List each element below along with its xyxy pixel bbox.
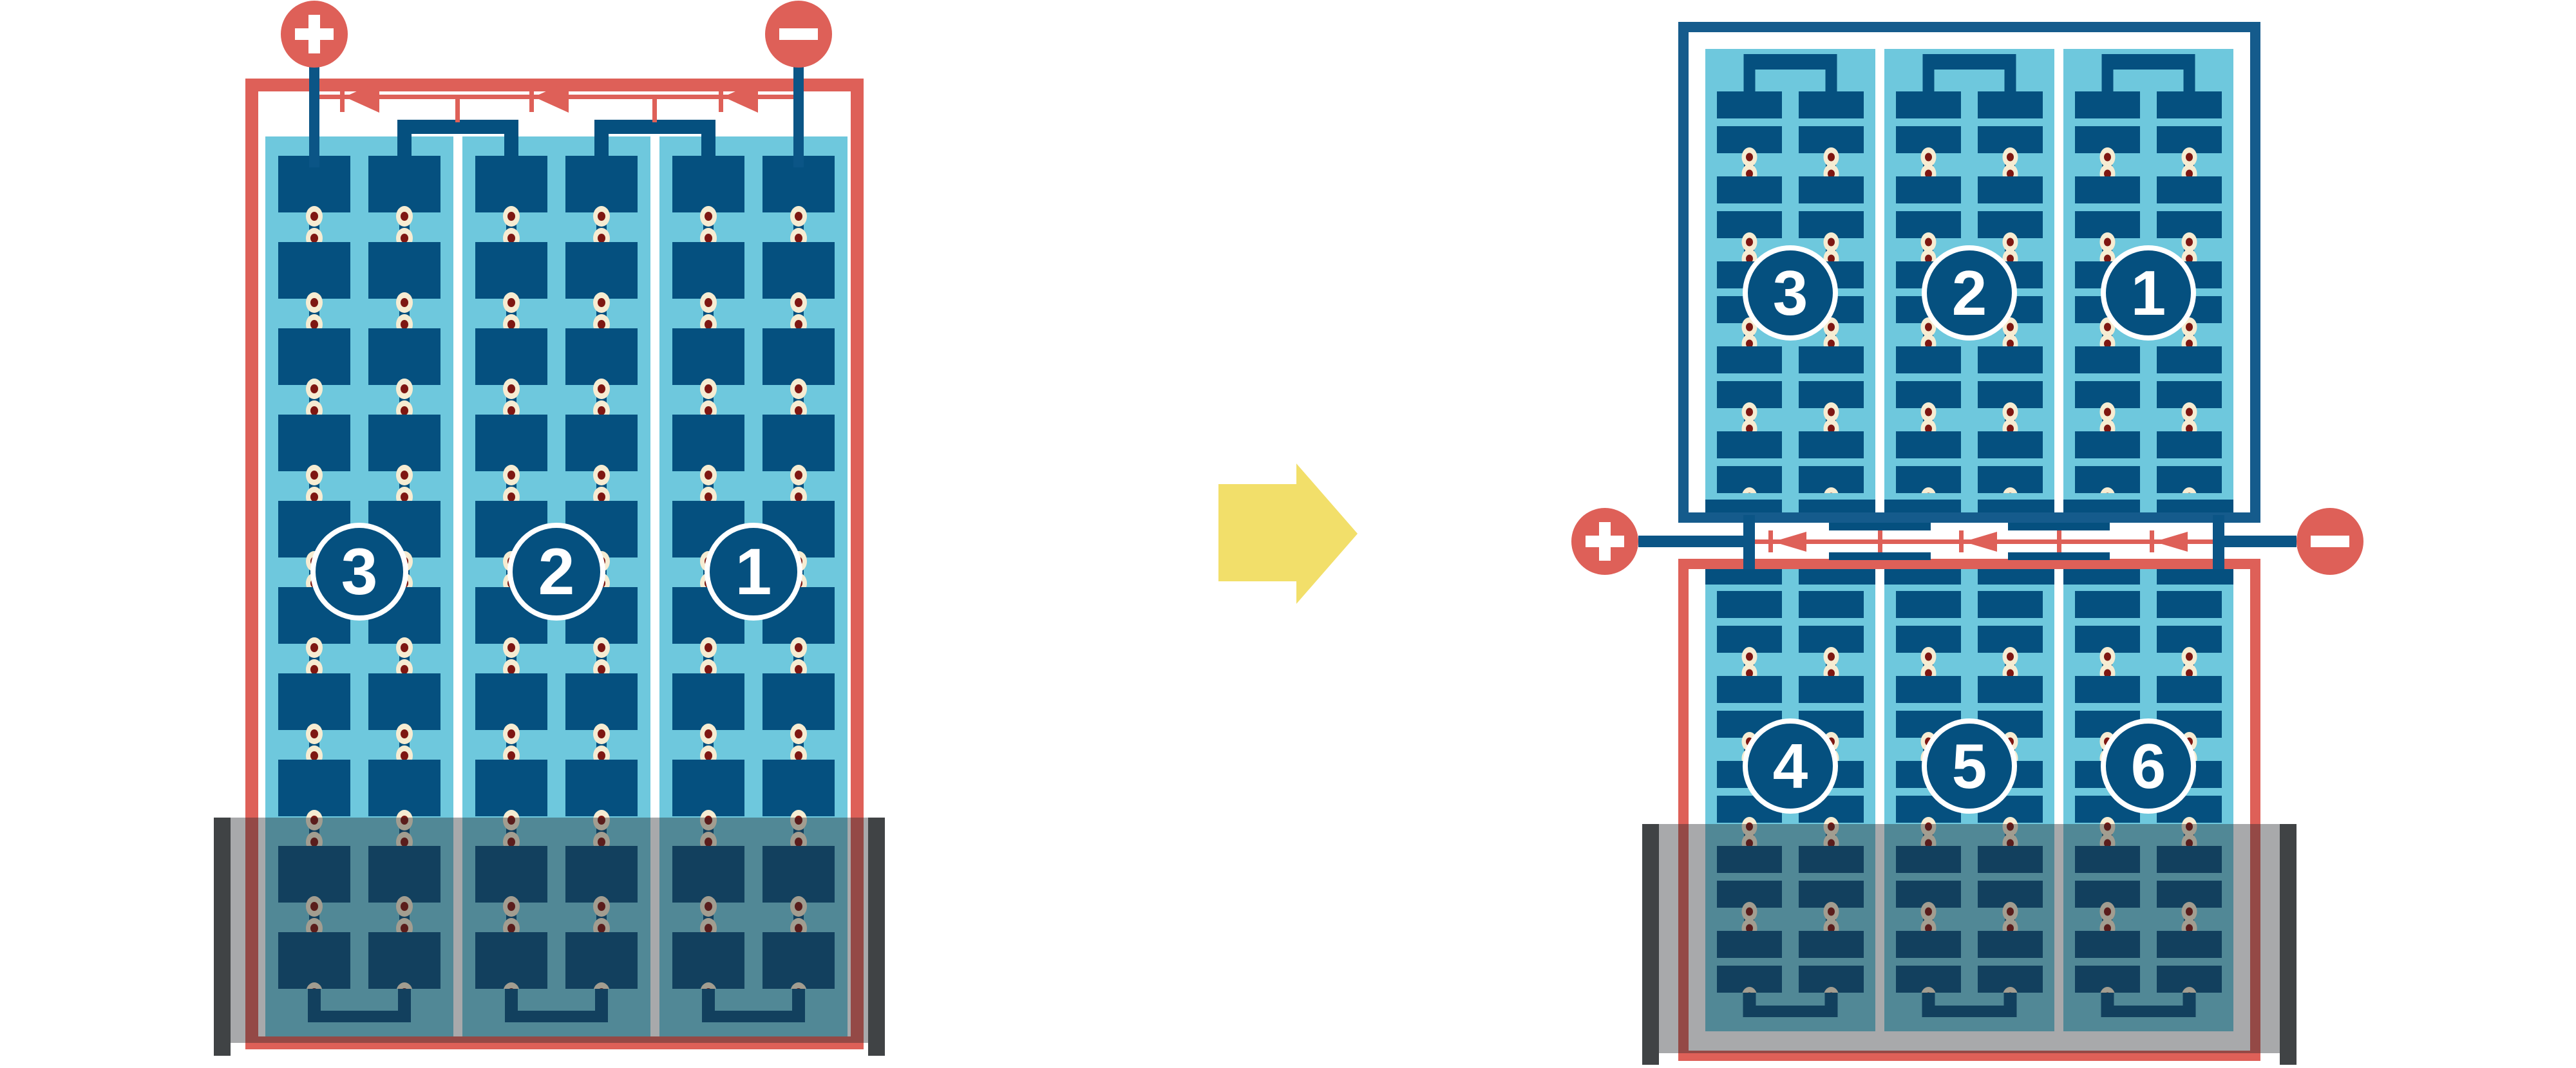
negative-lead [793,64,804,167]
left-bus-bar [1743,515,1755,569]
solar-string-wiring-diagram: 3 2 1 [0,0,2576,1068]
diode-icon [2150,530,2188,552]
negative-terminal [2297,508,2363,575]
positive-lead [1638,536,1743,547]
diode-tap [2057,530,2061,552]
flood-overlay [1642,824,2297,1053]
string-label: 6 [2131,731,2166,801]
negative-terminal [765,1,832,68]
right-bus-bar [2213,515,2224,569]
flood-edge-bar [1642,824,1659,1065]
diode-tap [455,97,460,122]
right-top-badges: 3 2 1 [1745,248,2193,338]
string-label: 1 [2131,258,2166,328]
string-label: 3 [341,535,378,608]
positive-terminal [281,1,348,68]
transition-arrow-icon [1218,464,1358,604]
diode-tap [1878,530,1882,552]
string-label: 5 [1952,731,1987,801]
diode-icon [1768,530,1806,552]
string-label: 2 [538,535,575,608]
flood-overlay [214,818,885,1043]
negative-lead [2224,536,2297,547]
string-label: 2 [1952,258,1987,328]
positive-lead [309,64,319,167]
right-top-panel: 3 2 1 [1683,27,2255,518]
right-split-diagram: 3 2 1 [1571,27,2363,1065]
diagram-canvas: 3 2 1 [0,0,2576,1068]
left-panel-diagram: 3 2 1 [214,1,885,1056]
flood-edge-bar [868,818,885,1056]
minus-icon [2311,536,2349,547]
flood-edge-bar [2280,824,2297,1065]
flood-edge-bar [214,818,231,1056]
string-label: 4 [1773,731,1808,801]
string-label: 3 [1773,258,1808,328]
diode-icon [1959,530,1997,552]
positive-terminal [1571,508,1638,575]
string-label: 1 [735,535,772,608]
minus-icon [779,28,818,40]
left-string-badges: 3 2 1 [313,525,800,618]
right-bottom-badges: 4 5 6 [1745,721,2193,811]
diode-tap [652,97,657,122]
